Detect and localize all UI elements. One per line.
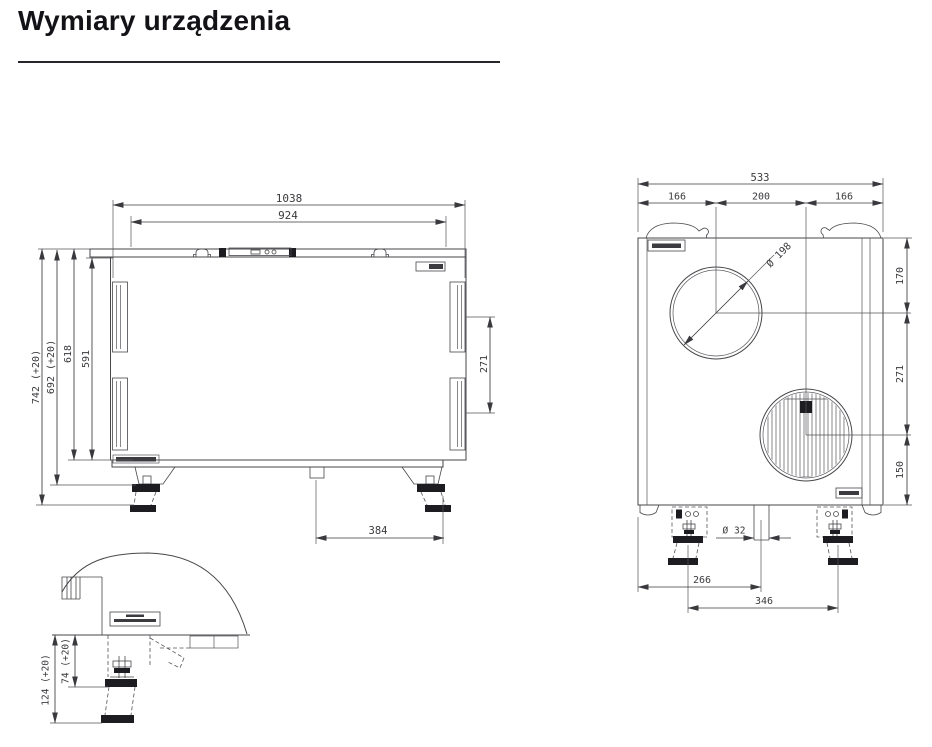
dim-front-height-body: 591 <box>81 350 92 368</box>
dim-front-height-max: 742 (+20) <box>31 350 42 404</box>
nameplate-text-bar <box>116 457 156 462</box>
foot-extension-phantom <box>134 492 156 505</box>
dim-side-foot-spacing: 346 <box>755 596 773 607</box>
detail-label-line1 <box>126 615 144 618</box>
display-icon <box>251 250 260 254</box>
button-icon <box>265 250 269 254</box>
foot-nut <box>683 524 695 529</box>
foot-pad-extended <box>668 558 698 565</box>
foot-pad <box>823 536 853 543</box>
foot-extension-phantom <box>673 543 699 558</box>
extension-lines <box>50 687 108 723</box>
side-drain-pipe <box>754 505 769 540</box>
foot-nut <box>829 524 841 529</box>
dim-side-duct-to-bottom: 150 <box>895 461 906 479</box>
dim-front-width-body: 924 <box>278 209 298 222</box>
button-icon <box>272 250 276 254</box>
side-case-body <box>638 238 883 505</box>
dim-side-seg-right: 166 <box>835 192 853 203</box>
foot-detail-view: 74 (+20) 124 (+20) <box>41 553 251 723</box>
detail-label-line2 <box>114 619 156 622</box>
foot-pad <box>132 484 160 492</box>
dim-side-edge-to-drain: 266 <box>693 575 711 586</box>
dim-detail-foot-min: 74 (+20) <box>61 638 72 684</box>
duct-flange-lines <box>117 285 121 349</box>
duct-centerlines <box>716 207 911 435</box>
dim-side-duct-spacing: 271 <box>895 365 906 383</box>
foot-nut <box>113 661 131 667</box>
foot-pad-extended <box>828 558 858 565</box>
front-right-duct-flanges <box>450 282 465 450</box>
lifting-handle <box>821 223 881 238</box>
hinge-edge-detail <box>62 577 102 635</box>
dim-front-drain-to-foot: 384 <box>369 525 388 537</box>
technical-drawing: 1038 924 742 (+20) 692 (+20) 618 591 271… <box>0 0 932 747</box>
front-case-body <box>111 257 467 460</box>
duct-flange-lines <box>458 381 462 447</box>
front-drain-stub <box>310 467 324 478</box>
dim-front-duct-spacing: 271 <box>479 355 490 373</box>
front-left-duct-flanges <box>113 282 128 450</box>
dim-detail-foot-max: 124 (+20) <box>41 654 52 705</box>
lifting-handle <box>194 249 211 257</box>
supply-port-label-text-bar <box>839 491 859 495</box>
dimension-drawing-page: Wymiary urządzenia <box>0 0 932 747</box>
front-right-foot <box>402 467 451 512</box>
foot-extension-phantom <box>105 687 135 715</box>
dim-side-drain-diameter: Ø 32 <box>723 526 746 537</box>
foot-bracket <box>135 467 175 484</box>
foot-pad-extended <box>425 505 451 512</box>
front-bottom-panel <box>112 460 443 467</box>
foot-bolt <box>826 512 831 517</box>
foot-screw <box>426 476 434 484</box>
foot-detail <box>676 510 682 519</box>
side-view: 533 166 200 166 Ø 198 170 271 150 Ø 32 2… <box>638 172 912 613</box>
dim-side-top-to-duct: 170 <box>895 267 906 285</box>
extension-lines <box>36 200 495 544</box>
corner-bracket <box>640 505 659 515</box>
dim-front-height-to-lid: 618 <box>63 345 74 363</box>
foot-pad <box>105 679 137 687</box>
foot-pad-extended <box>130 505 156 512</box>
foot-bolt <box>686 512 691 517</box>
duct-flange-lines <box>458 285 462 349</box>
exhaust-port-label-text-bar <box>652 244 681 249</box>
foot-nut-dark <box>830 530 840 534</box>
foot-extension-phantom <box>827 543 852 558</box>
duct-flange <box>113 378 128 450</box>
dim-front-width-overall: 1038 <box>276 192 303 205</box>
lifting-handle <box>646 223 708 238</box>
latch <box>219 248 226 257</box>
front-left-foot <box>130 467 175 512</box>
lifting-handle <box>372 249 389 257</box>
side-right-foot <box>817 507 858 565</box>
duct-flange-lines <box>117 381 121 447</box>
dim-side-duct-diameter: Ø 198 <box>764 240 794 270</box>
foot-pad-extended <box>101 715 134 723</box>
foot-pad <box>673 536 703 543</box>
foot-screw <box>143 476 151 484</box>
foot-nut-dark <box>684 530 694 534</box>
duct-flange <box>113 282 128 352</box>
dim-side-seg-center: 200 <box>752 192 770 203</box>
dim-side-seg-left: 166 <box>668 192 686 203</box>
front-view: 1038 924 742 (+20) 692 (+20) 618 591 271… <box>31 192 495 544</box>
foot-bolt <box>694 512 699 517</box>
front-top-details <box>194 248 446 271</box>
foot-detail <box>842 510 848 519</box>
foot-pad <box>417 484 445 492</box>
logo-mark <box>429 264 443 269</box>
foot-bolt <box>834 512 839 517</box>
foot-nut-dark <box>114 668 130 673</box>
dim-side-depth-overall: 533 <box>751 172 770 184</box>
corner-bracket <box>862 505 881 515</box>
foot-extension-phantom <box>421 492 445 505</box>
side-left-foot <box>668 507 707 565</box>
extension-lines <box>638 178 912 613</box>
dim-front-height-with-feet: 692 (+20) <box>46 340 57 394</box>
foot-bracket <box>402 467 442 484</box>
